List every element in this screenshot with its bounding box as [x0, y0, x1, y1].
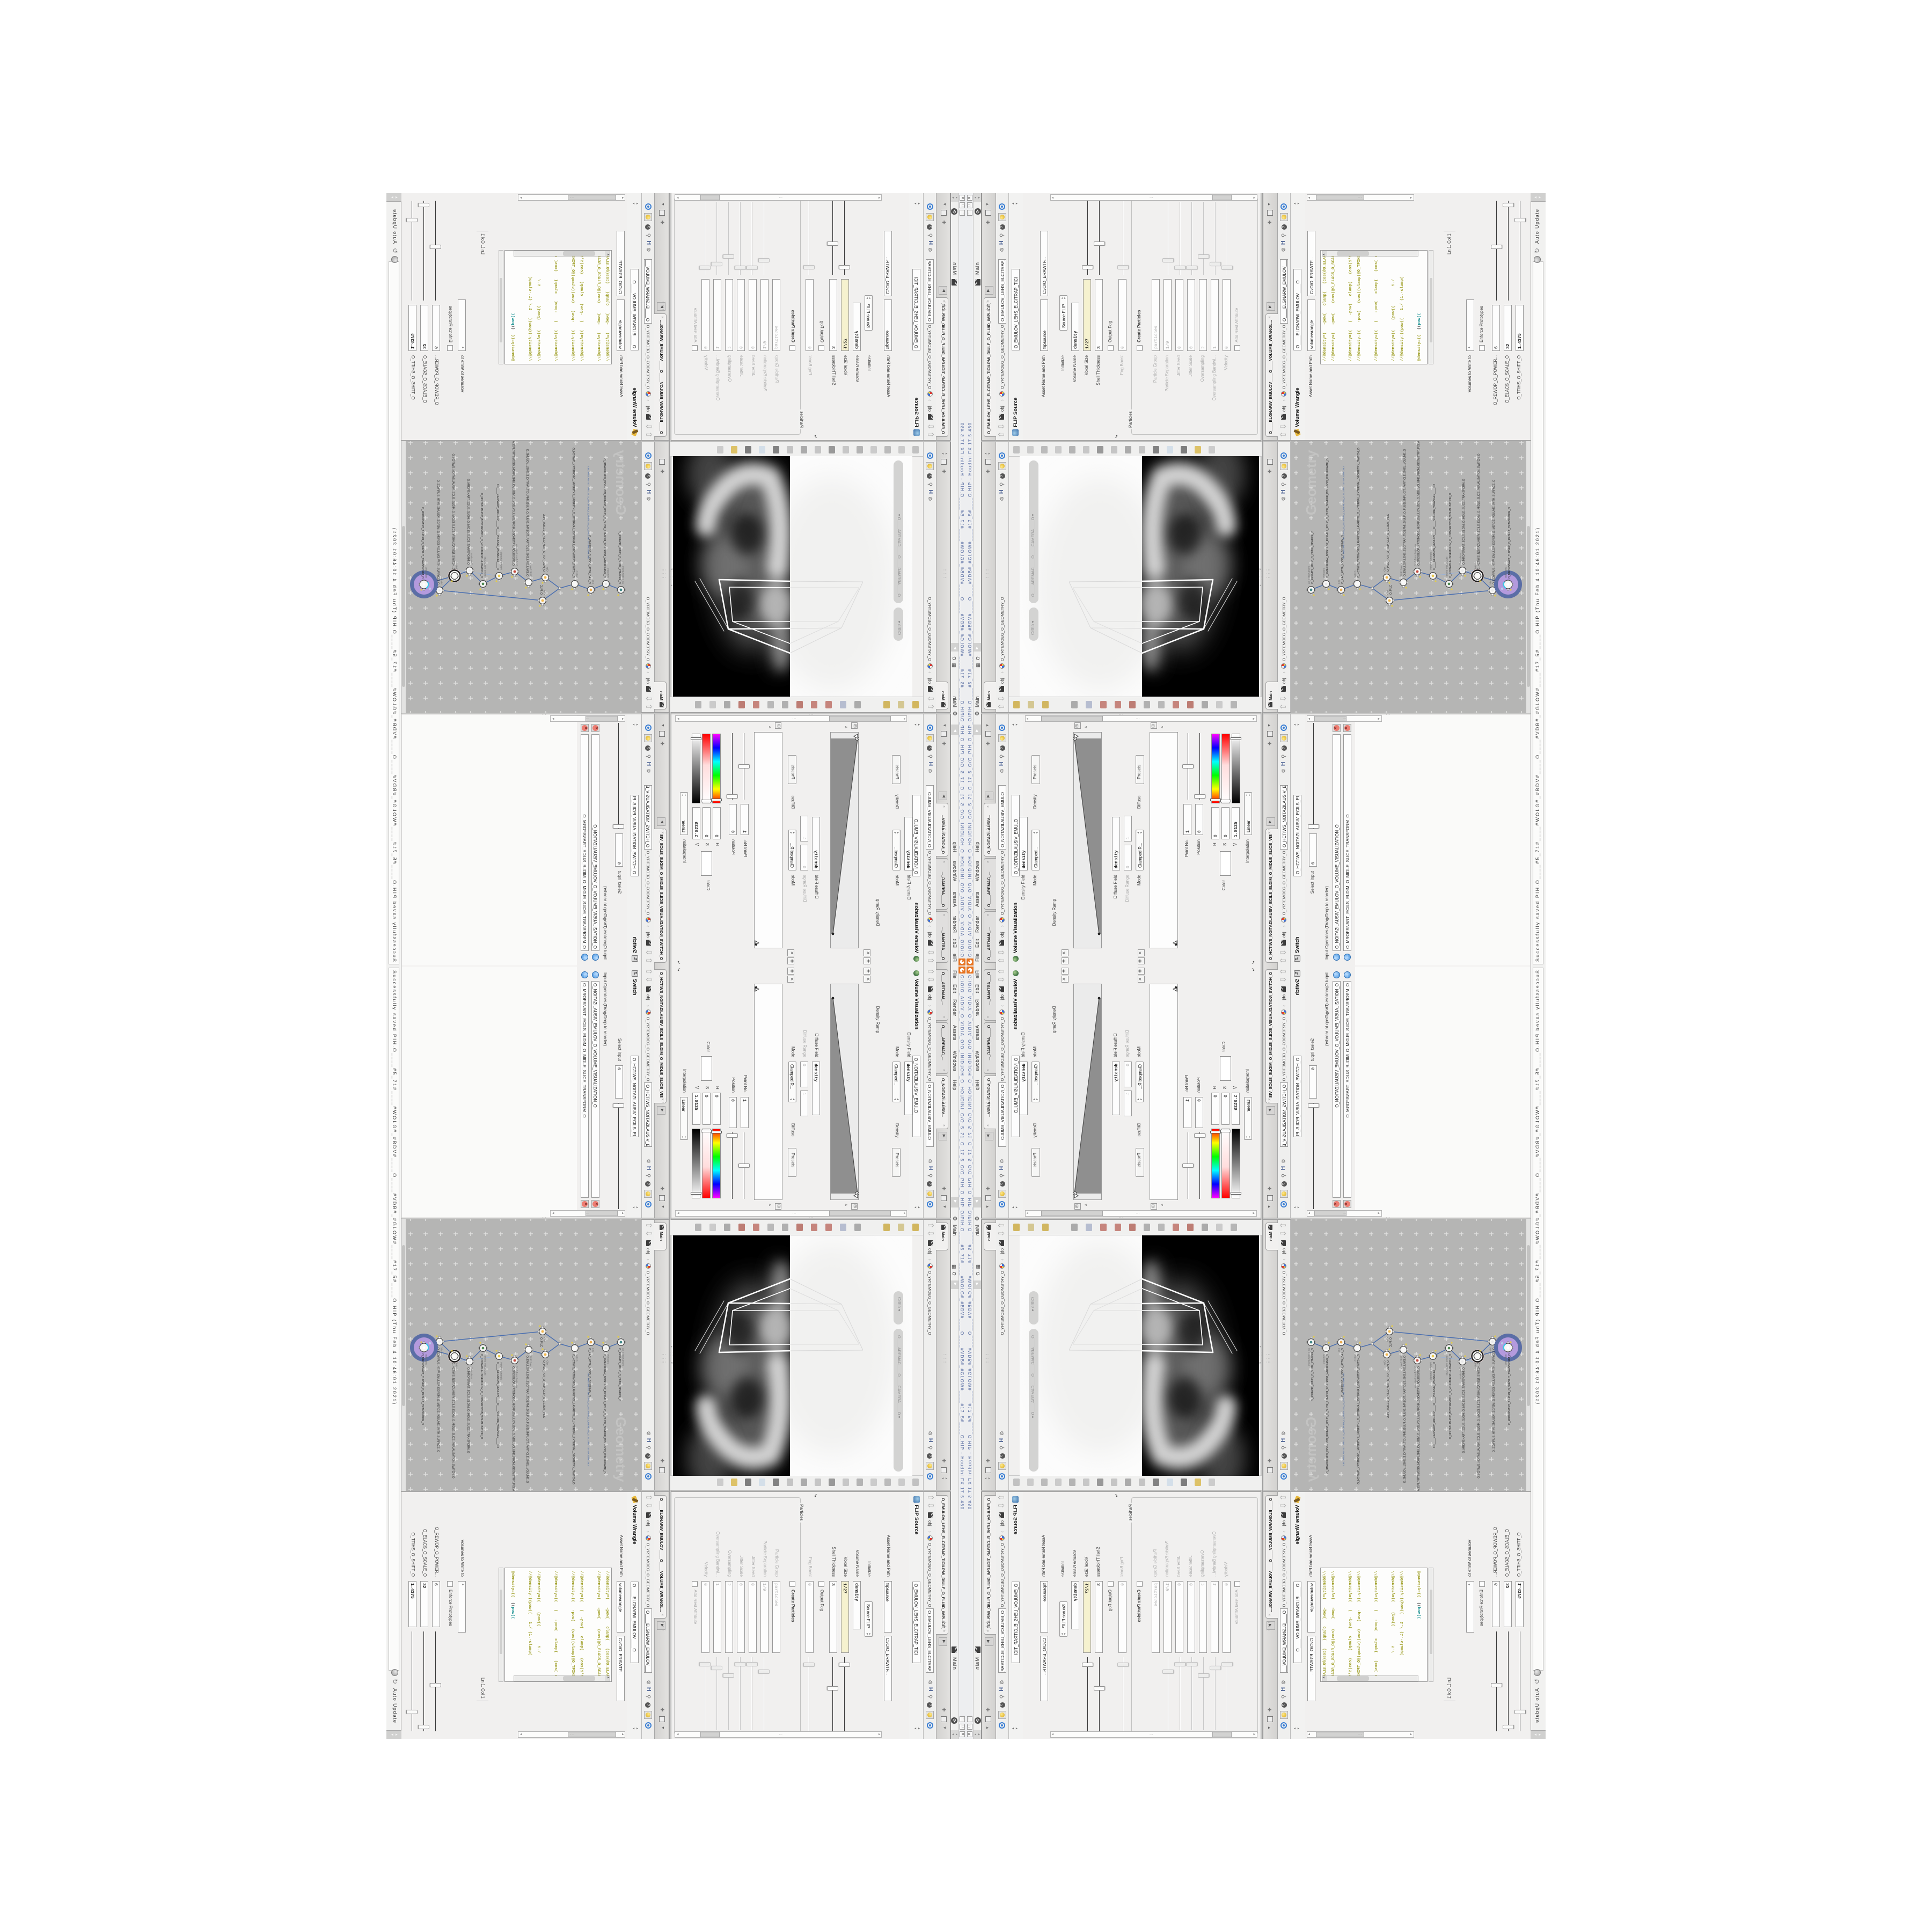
svg-text:O____ELGNARW_EMULOV____O____VO: O____ELGNARW_EMULOV____O____VOLUME_WRANG…: [1433, 1362, 1436, 1448]
svg-text:Transform: Transform: [425, 567, 428, 579]
svg-text:O_PILC_POT_O_TOP_CLIP_O_EGRUS_: O_PILC_POT_O_TOP_CLIP_O_EGRUS_PILC: [1387, 514, 1390, 572]
svg-text:Volume Wrangle: Volume Wrangle: [1429, 1362, 1432, 1380]
svg-text:O_EMULOV_LEHS_ELCITRAP_TICILPM: O_EMULOV_LEHS_ELCITRAP_TICILPMI_DIULF_O_…: [1403, 449, 1407, 576]
svg-text:PolyWire: PolyWire: [607, 1354, 610, 1364]
svg-text:Clip: Clip: [1383, 567, 1386, 572]
svg-text:O_EMARFERIW_NOGYLOP_EREHPS_EBU: O_EMARFERIW_NOGYLOP_EREHPS_EBUC_O_CUBE_S…: [603, 458, 606, 578]
svg-text:Merge: Merge: [1489, 577, 1491, 584]
svg-text:VDB from Polygons: VDB from Polygons: [1414, 544, 1416, 566]
svg-text:VDB from Polygons: VDB from Polygons: [516, 544, 518, 566]
svg-text:JBO.MD3.PETS.TELOPS_O_5SUNEG_O: JBO.MD3.PETS.TELOPS_O_5SUNEG_O_GENUS5_O.…: [1342, 466, 1345, 560]
svg-text:O_SNOGILOP_YRTEMOEG_MORF_EMULO: O_SNOGILOP_YRTEMOEG_MORF_EMULOV_BDV_O_VD…: [1417, 1366, 1421, 1491]
svg-text:Clip: Clip: [1386, 1337, 1388, 1342]
svg-text:Transform: Transform: [1504, 567, 1507, 579]
svg-text:an_CubeSphere: an_CubeSphere: [622, 1348, 625, 1366]
svg-text:Transform: Transform: [471, 553, 473, 565]
svg-text:O_MROFSNART_ECILS_ELDIM_O_MIDL: O_MROFSNART_ECILS_ELDIM_O_MIDLE_SLICE_TR…: [1462, 479, 1466, 565]
svg-text:Transform: Transform: [425, 1353, 428, 1365]
svg-text:Volume VisualizMix: Volume VisualizMix: [484, 557, 487, 578]
svg-text:Transform: Transform: [1504, 1353, 1507, 1365]
svg-text:O_PILC_POT_O_TOP_CLIP_O_EGRUS_: O_PILC_POT_O_TOP_CLIP_O_EGRUS_PILC: [542, 514, 545, 572]
svg-text:O_MROFSNART_TLUSER_O_RESULT_TR: O_MROFSNART_TLUSER_O_RESULT_TRANSFORM_O: [1508, 507, 1511, 579]
svg-text:Switch: Switch: [456, 562, 458, 570]
svg-text:O_NOITAZILAUSIVEMULOV_O_CONVER: O_NOITAZILAUSIVEMULOV_O_CONVERTVDB_VISUA…: [1449, 1354, 1452, 1439]
svg-text:Geometry: Geometry: [1303, 450, 1319, 515]
svg-text:Clip: Clip: [544, 590, 546, 595]
svg-text:Clip: Clip: [546, 567, 549, 572]
svg-text:Clip: Clip: [1386, 590, 1388, 595]
svg-text:O_EREHPS_EBUC_O_CUBE_SPHERE_O: O_EREHPS_EBUC_O_CUBE_SPHERE_O: [1311, 1348, 1314, 1401]
svg-text:O_NOITAZILAUSIVEMULOV_O_CONVER: O_NOITAZILAUSIVEMULOV_O_CONVERTVDB_VISUA…: [1449, 493, 1452, 578]
svg-text:Switch: Switch: [1474, 1362, 1476, 1370]
svg-text:File: File: [1337, 580, 1340, 584]
svg-text:O_HCTIWS_YRTEMOEG_LANRETXE_LAN: O_HCTIWS_YRTEMOEG_LANRETXE_LANRETNI_O_IN…: [572, 1354, 575, 1484]
svg-text:Clip: Clip: [1383, 1360, 1386, 1365]
svg-text:Volume Wrangle: Volume Wrangle: [500, 1362, 503, 1380]
svg-text:O_EMARFERIW_NOGYLOP_EREHPS_EBU: O_EMARFERIW_NOGYLOP_EREHPS_EBUC_O_CUBE_S…: [1326, 458, 1329, 578]
svg-text:Transform: Transform: [1459, 553, 1461, 565]
svg-text:an_CubeSphere: an_CubeSphere: [1307, 1348, 1310, 1366]
svg-text:O_MROFSNART_ECILS_ELDIM_O_MIDL: O_MROFSNART_ECILS_ELDIM_O_MIDLE_SLICE_TR…: [466, 479, 470, 565]
svg-text:FLIP Source: FLIP Source: [1400, 1356, 1402, 1370]
svg-text:O_HCTIWS_YRTEMOEG_LANRETXE_LAN: O_HCTIWS_YRTEMOEG_LANRETXE_LANRETNI_O_IN…: [1357, 448, 1360, 578]
svg-text:O_PILC: O_PILC: [1389, 585, 1393, 595]
svg-text:Volume VisualizMix: Volume VisualizMix: [1445, 1354, 1448, 1375]
svg-text:PolyWire: PolyWire: [607, 568, 610, 578]
svg-text:Switch: Switch: [456, 1362, 458, 1370]
svg-text:an_CubeSphere: an_CubeSphere: [622, 566, 625, 584]
svg-text:O_MROFSNART_ECILS_ELDIM_O_MIDL: O_MROFSNART_ECILS_ELDIM_O_MIDLE_SLICE_TR…: [466, 1367, 470, 1453]
svg-text:O_EREHPS_EBUC_O_CUBE_SPHERE_O: O_EREHPS_EBUC_O_CUBE_SPHERE_O: [618, 1348, 621, 1401]
svg-text:O_EMARFERIW_NOGYLOP_EREHPS_EBU: O_EMARFERIW_NOGYLOP_EREHPS_EBUC_O_CUBE_S…: [603, 1354, 606, 1474]
svg-text:O_PILC: O_PILC: [539, 1337, 543, 1347]
svg-text:Volume Wrangle: Volume Wrangle: [500, 552, 503, 570]
svg-text:Transform: Transform: [1459, 1367, 1461, 1379]
svg-text:Geometry: Geometry: [613, 450, 629, 515]
svg-text:Transform: Transform: [471, 1367, 473, 1379]
svg-text:O_SNOGILOP_YRTEMOEG_MORF_EMULO: O_SNOGILOP_YRTEMOEG_MORF_EMULOV_BDV_O_VD…: [511, 441, 515, 566]
svg-text:O_HCTIWS_NOITAZILAUSIV_ECILS_E: O_HCTIWS_NOITAZILAUSIV_ECILS_ELDIM_O_MID…: [1477, 453, 1481, 570]
svg-text:O_EMULOV_LEHS_ELCITRAP_TICILPM: O_EMULOV_LEHS_ELCITRAP_TICILPMI_DIULF_O_…: [525, 449, 529, 576]
svg-text:Clip: Clip: [544, 1337, 546, 1342]
svg-text:O____ELGNARW_EMULOV____O____VO: O____ELGNARW_EMULOV____O____VOLUME_WRANG…: [496, 484, 499, 570]
svg-text:Merge: Merge: [441, 1348, 443, 1355]
svg-text:FLIP Source: FLIP Source: [1400, 562, 1402, 576]
svg-text:Volume Wrangle: Volume Wrangle: [1429, 552, 1432, 570]
svg-text:Switch: Switch: [1353, 570, 1356, 578]
svg-text:FLIP Source: FLIP Source: [530, 1356, 532, 1370]
svg-text:O_PILC_POT_O_TOP_CLIP_O_EGRUS_: O_PILC_POT_O_TOP_CLIP_O_EGRUS_PILC: [542, 1360, 545, 1418]
svg-text:Switch: Switch: [1474, 562, 1476, 570]
svg-text:O_PILC: O_PILC: [539, 585, 543, 595]
svg-text:O_NOITAZILAUSIVEMULOV_O_CONVER: O_NOITAZILAUSIVEMULOV_O_CONVERTVDB_VISUA…: [480, 493, 483, 578]
svg-text:O_HCTIWS_NOITAZILAUSIV_ECILS_E: O_HCTIWS_NOITAZILAUSIV_ECILS_ELDIM_O_MID…: [451, 1362, 455, 1479]
svg-text:File: File: [592, 1348, 595, 1352]
svg-text:O_SNOGILOP_YRTEMOEG_MORF_EMULO: O_SNOGILOP_YRTEMOEG_MORF_EMULOV_BDV_O_VD…: [511, 1366, 515, 1491]
svg-text:O_MROFSNART_TLUSER_O_RESULT_TR: O_MROFSNART_TLUSER_O_RESULT_TRANSFORM_O: [421, 1353, 424, 1425]
svg-text:O_SNOGILOP_YRTEMOEG_MORF_EMULO: O_SNOGILOP_YRTEMOEG_MORF_EMULOV_BDV_O_VD…: [1417, 441, 1421, 566]
svg-text:O_MROFSNART_TLUSER_O_RESULT_TR: O_MROFSNART_TLUSER_O_RESULT_TRANSFORM_O: [421, 507, 424, 579]
svg-text:O_MROFSNART_TLUSER_O_RESULT_TR: O_MROFSNART_TLUSER_O_RESULT_TRANSFORM_O: [1508, 1353, 1511, 1425]
svg-text:O_ECAFRUS_HTIW_EMULOV_EGREM_O_: O_ECAFRUS_HTIW_EMULOV_EGREM_O_MERGE_VOLU…: [1492, 480, 1496, 584]
svg-text:O_MROFSNART_ECILS_ELDIM_O_MIDL: O_MROFSNART_ECILS_ELDIM_O_MIDLE_SLICE_TR…: [1462, 1367, 1466, 1453]
svg-text:Geometry: Geometry: [1303, 1417, 1319, 1482]
svg-text:JBO.MD3.PETS.TELOPS_O_5SUNEG_O: JBO.MD3.PETS.TELOPS_O_5SUNEG_O_GENUS5_O.…: [1342, 1372, 1345, 1466]
svg-text:JBO.MD3.PETS.TELOPS_O_5SUNEG_O: JBO.MD3.PETS.TELOPS_O_5SUNEG_O_GENUS5_O.…: [587, 466, 590, 560]
svg-text:Switch: Switch: [576, 570, 579, 578]
svg-text:Volume VisualizMix: Volume VisualizMix: [1445, 557, 1448, 578]
svg-text:O_EMULOV_LEHS_ELCITRAP_TICILPM: O_EMULOV_LEHS_ELCITRAP_TICILPMI_DIULF_O_…: [1403, 1356, 1407, 1483]
svg-text:Geometry: Geometry: [613, 1417, 629, 1482]
svg-text:Switch: Switch: [1353, 1354, 1356, 1362]
svg-text:O_EMULOV_LEHS_ELCITRAP_TICILPM: O_EMULOV_LEHS_ELCITRAP_TICILPMI_DIULF_O_…: [525, 1356, 529, 1483]
svg-text:JBO.MD3.PETS.TELOPS_O_5SUNEG_O: JBO.MD3.PETS.TELOPS_O_5SUNEG_O_GENUS5_O.…: [587, 1372, 590, 1466]
svg-text:O____ELGNARW_EMULOV____O____VO: O____ELGNARW_EMULOV____O____VOLUME_WRANG…: [496, 1362, 499, 1448]
svg-text:Merge: Merge: [1489, 1348, 1491, 1355]
svg-text:Clip: Clip: [546, 1360, 549, 1365]
svg-text:VDB from Polygons: VDB from Polygons: [516, 1366, 518, 1388]
svg-text:O_HCTIWS_NOITAZILAUSIV_ECILS_E: O_HCTIWS_NOITAZILAUSIV_ECILS_ELDIM_O_MID…: [451, 453, 455, 570]
svg-text:O____ELGNARW_EMULOV____O____VO: O____ELGNARW_EMULOV____O____VOLUME_WRANG…: [1433, 484, 1436, 570]
svg-text:O_EREHPS_EBUC_O_CUBE_SPHERE_O: O_EREHPS_EBUC_O_CUBE_SPHERE_O: [618, 531, 621, 584]
svg-text:File: File: [1337, 1348, 1340, 1352]
svg-text:PolyWire: PolyWire: [1322, 1354, 1325, 1364]
svg-text:O_PILC: O_PILC: [1389, 1337, 1393, 1347]
svg-text:FLIP Source: FLIP Source: [530, 562, 532, 576]
svg-text:Merge: Merge: [441, 577, 443, 584]
svg-text:O_ECAFRUS_HTIW_EMULOV_EGREM_O_: O_ECAFRUS_HTIW_EMULOV_EGREM_O_MERGE_VOLU…: [436, 480, 440, 584]
svg-text:O_NOITAZILAUSIVEMULOV_O_CONVER: O_NOITAZILAUSIVEMULOV_O_CONVERTVDB_VISUA…: [480, 1354, 483, 1439]
svg-text:O_HCTIWS_YRTEMOEG_LANRETXE_LAN: O_HCTIWS_YRTEMOEG_LANRETXE_LANRETNI_O_IN…: [1357, 1354, 1360, 1484]
svg-text:Switch: Switch: [576, 1354, 579, 1362]
svg-text:PolyWire: PolyWire: [1322, 568, 1325, 578]
svg-text:O_EMARFERIW_NOGYLOP_EREHPS_EBU: O_EMARFERIW_NOGYLOP_EREHPS_EBUC_O_CUBE_S…: [1326, 1354, 1329, 1474]
svg-text:O_EREHPS_EBUC_O_CUBE_SPHERE_O: O_EREHPS_EBUC_O_CUBE_SPHERE_O: [1311, 531, 1314, 584]
svg-text:O_HCTIWS_YRTEMOEG_LANRETXE_LAN: O_HCTIWS_YRTEMOEG_LANRETXE_LANRETNI_O_IN…: [572, 448, 575, 578]
svg-text:File: File: [592, 580, 595, 584]
svg-text:O_PILC_POT_O_TOP_CLIP_O_EGRUS_: O_PILC_POT_O_TOP_CLIP_O_EGRUS_PILC: [1387, 1360, 1390, 1418]
svg-text:O_ECAFRUS_HTIW_EMULOV_EGREM_O_: O_ECAFRUS_HTIW_EMULOV_EGREM_O_MERGE_VOLU…: [436, 1348, 440, 1452]
svg-text:O_ECAFRUS_HTIW_EMULOV_EGREM_O_: O_ECAFRUS_HTIW_EMULOV_EGREM_O_MERGE_VOLU…: [1492, 1348, 1496, 1452]
svg-text:Volume VisualizMix: Volume VisualizMix: [484, 1354, 487, 1375]
svg-text:O_HCTIWS_NOITAZILAUSIV_ECILS_E: O_HCTIWS_NOITAZILAUSIV_ECILS_ELDIM_O_MID…: [1477, 1362, 1481, 1479]
svg-text:VDB from Polygons: VDB from Polygons: [1414, 1366, 1416, 1388]
svg-text:an_CubeSphere: an_CubeSphere: [1307, 566, 1310, 584]
